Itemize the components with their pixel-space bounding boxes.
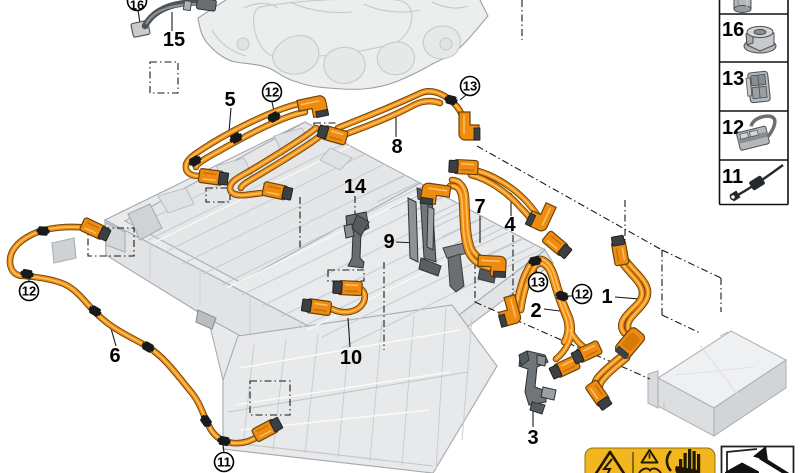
svg-text:2: 2: [530, 300, 541, 322]
svg-text:11: 11: [722, 166, 743, 188]
svg-text:15: 15: [163, 29, 185, 51]
svg-text:6: 6: [109, 345, 120, 367]
svg-text:12: 12: [575, 287, 589, 302]
svg-text:3: 3: [527, 427, 538, 449]
svg-text:16: 16: [722, 19, 744, 41]
svg-text:12: 12: [22, 284, 36, 299]
svg-text:5: 5: [224, 89, 235, 111]
svg-text:13: 13: [463, 79, 477, 94]
svg-text:11: 11: [217, 455, 231, 470]
svg-text:7: 7: [474, 196, 485, 218]
svg-text:13: 13: [722, 68, 744, 90]
svg-text:4: 4: [504, 214, 516, 236]
svg-text:16: 16: [130, 0, 144, 13]
svg-text:13: 13: [531, 275, 545, 290]
svg-text:12: 12: [265, 85, 279, 100]
svg-text:9: 9: [383, 231, 394, 253]
svg-text:1: 1: [601, 286, 612, 308]
svg-text:14: 14: [344, 176, 367, 198]
svg-text:8: 8: [391, 136, 402, 158]
svg-text:10: 10: [340, 347, 362, 369]
